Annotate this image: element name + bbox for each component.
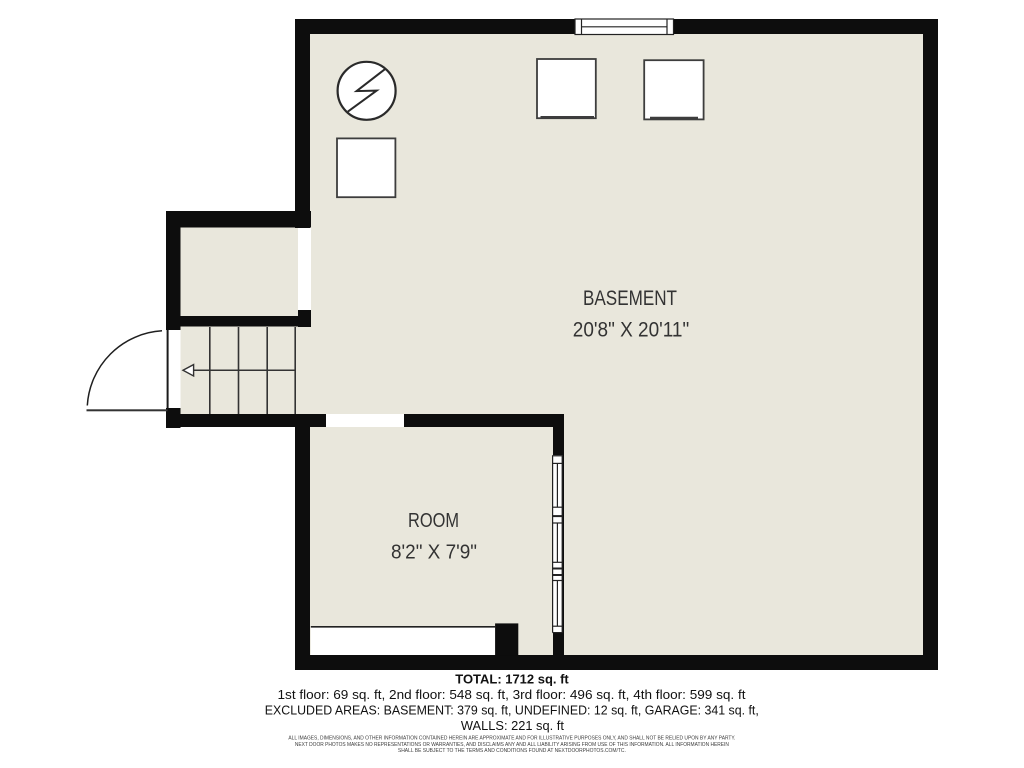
- svg-text:BASEMENT: BASEMENT: [583, 286, 677, 310]
- svg-text:20'8" X 20'11": 20'8" X 20'11": [573, 317, 690, 341]
- svg-text:SHALL BE SUBJECT TO THE TERMS: SHALL BE SUBJECT TO THE TERMS AND CONDIT…: [398, 748, 626, 754]
- svg-text:ROOM: ROOM: [408, 509, 459, 532]
- svg-text:WALLS: 221 sq. ft: WALLS: 221 sq. ft: [461, 719, 565, 733]
- svg-text:8'2" X 7'9": 8'2" X 7'9": [391, 541, 477, 564]
- svg-text:1st floor: 69 sq. ft, 2nd floo: 1st floor: 69 sq. ft, 2nd floor: 548 sq.…: [278, 688, 747, 702]
- svg-text:EXCLUDED AREAS: BASEMENT: 379: EXCLUDED AREAS: BASEMENT: 379 sq. ft, UN…: [265, 703, 759, 717]
- svg-text:TOTAL: 1712 sq. ft: TOTAL: 1712 sq. ft: [455, 672, 569, 686]
- svg-text:NEXT DOOR PHOTOS MAKES NO REPR: NEXT DOOR PHOTOS MAKES NO REPRESENTATION…: [295, 742, 729, 748]
- svg-text:ALL IMAGES, DIMENSIONS, AND OT: ALL IMAGES, DIMENSIONS, AND OTHER INFORM…: [288, 736, 735, 742]
